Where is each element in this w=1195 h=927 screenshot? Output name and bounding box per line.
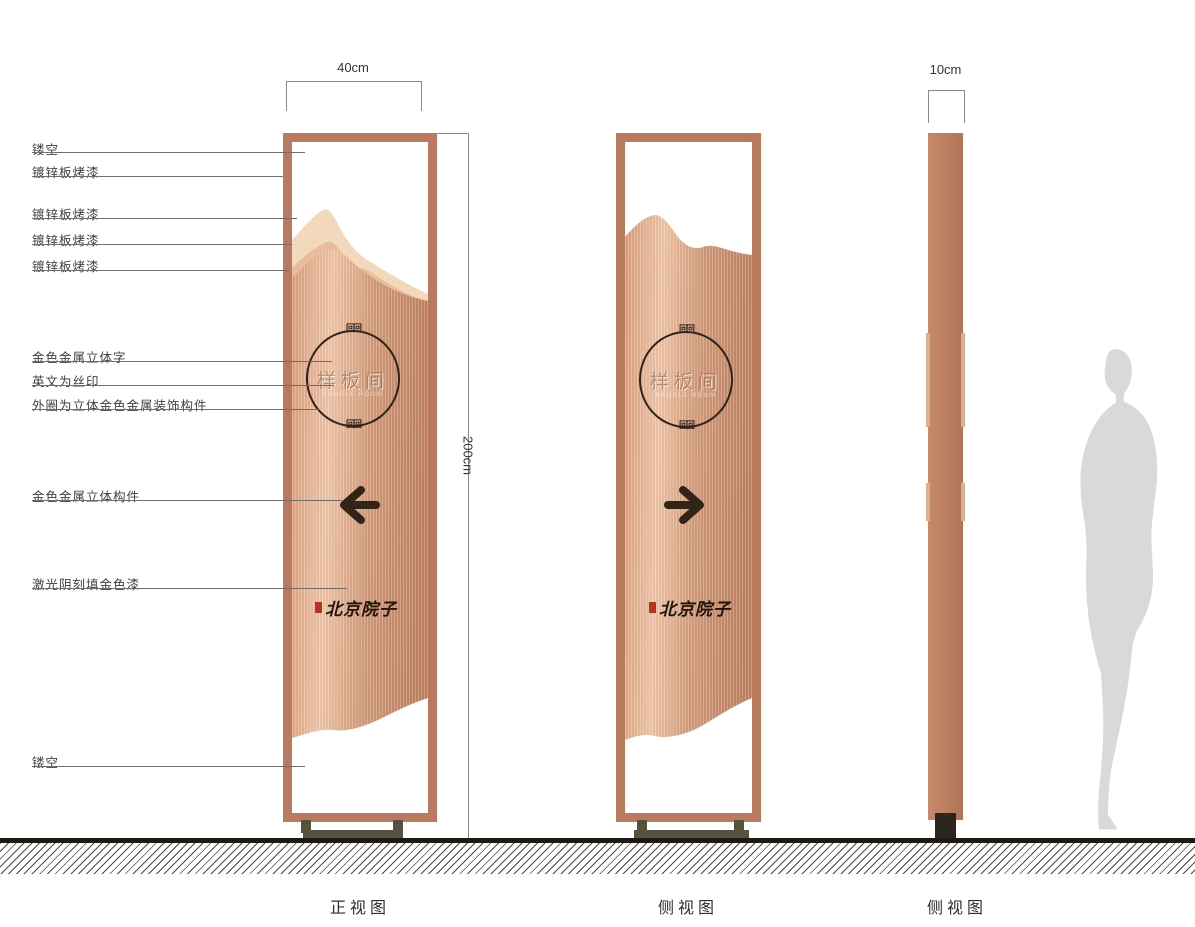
direction-arrow-left-icon — [334, 484, 380, 526]
dimension-10cm: 10cm — [920, 62, 971, 77]
sign-base-plate — [634, 830, 749, 838]
leader-line — [32, 409, 320, 410]
brand-text: 北京院子 — [659, 595, 731, 620]
human-silhouette — [1040, 340, 1178, 840]
view-label-side-1: 侧视图 — [633, 894, 743, 918]
dimension-40cm: 40cm — [286, 60, 420, 75]
sample-room-text: 样板间 — [639, 367, 733, 394]
leader-line — [32, 766, 305, 767]
profile-edge-strip — [926, 483, 930, 521]
leader-line — [32, 152, 305, 153]
dimension-200cm-tick — [437, 133, 468, 134]
emblem-ornament-top: 回回 — [676, 325, 696, 334]
profile-column — [928, 133, 963, 820]
callout-label: 镂空 — [32, 139, 59, 158]
callout-label: 激光阴刻填金色漆 — [32, 574, 140, 593]
callout-label: 镀锌板烤漆 — [32, 230, 100, 249]
sample-room-text: 样板间 — [306, 366, 400, 393]
direction-arrow-right-icon — [664, 484, 710, 526]
view-label-side-2: 侧视图 — [902, 894, 1012, 918]
dimension-200cm-line — [468, 133, 469, 843]
brand-calligraphy: 北京院子 — [300, 595, 412, 619]
callout-label: 金色金属立体字 — [32, 347, 127, 366]
emblem-ornament-top: 回回 — [343, 324, 363, 333]
view-label-front: 正视图 — [305, 894, 415, 918]
leader-line — [32, 218, 297, 219]
sign-base-plate — [303, 830, 403, 838]
leader-line — [32, 270, 289, 271]
profile-edge-strip — [961, 333, 965, 427]
side-view-sign — [616, 133, 761, 822]
brand-seal — [315, 602, 322, 613]
mountain-graphic — [625, 142, 752, 813]
dimension-200cm: 200cm — [461, 431, 476, 481]
signage-spec-drawing: 镂空 镀锌板烤漆 镀锌板烤漆 镀锌板烤漆 镀锌板烤漆 金色金属立体字 英文为丝印… — [0, 0, 1195, 927]
dimension-40cm-bracket — [286, 81, 422, 111]
brand-seal — [649, 602, 656, 613]
callout-label: 镀锌板烤漆 — [32, 204, 100, 223]
english-caption: SAMPLE ROOM — [306, 392, 400, 398]
profile-edge-strip — [926, 333, 930, 427]
callout-label: 外圈为立体金色金属装饰构件 — [32, 395, 208, 414]
front-view-sign — [283, 133, 437, 822]
callout-label: 镂空 — [32, 752, 59, 771]
callout-label: 镀锌板烤漆 — [32, 162, 100, 181]
ground-hatch — [0, 843, 1195, 874]
leader-line — [32, 588, 347, 589]
english-caption: SAMPLE ROOM — [639, 393, 733, 399]
leader-line — [32, 385, 334, 386]
leader-line — [32, 361, 332, 362]
front-view-panel — [292, 142, 428, 813]
profile-foot — [935, 813, 956, 840]
profile-edge-strip — [961, 483, 965, 521]
callout-label: 英文为丝印 — [32, 371, 100, 390]
side-view-panel — [625, 142, 752, 813]
callout-label: 镀锌板烤漆 — [32, 256, 100, 275]
dimension-10cm-bracket — [928, 90, 965, 123]
leader-line — [32, 176, 283, 177]
emblem-ornament-bottom: 回回 — [343, 420, 363, 429]
mountain-graphic — [292, 142, 428, 813]
brand-text: 北京院子 — [325, 595, 397, 620]
emblem-ornament-bottom: 回回 — [676, 421, 696, 430]
brand-calligraphy: 北京院子 — [634, 595, 746, 619]
leader-line — [32, 244, 292, 245]
callout-label: 金色金属立体构件 — [32, 486, 140, 505]
leader-line — [32, 500, 342, 501]
